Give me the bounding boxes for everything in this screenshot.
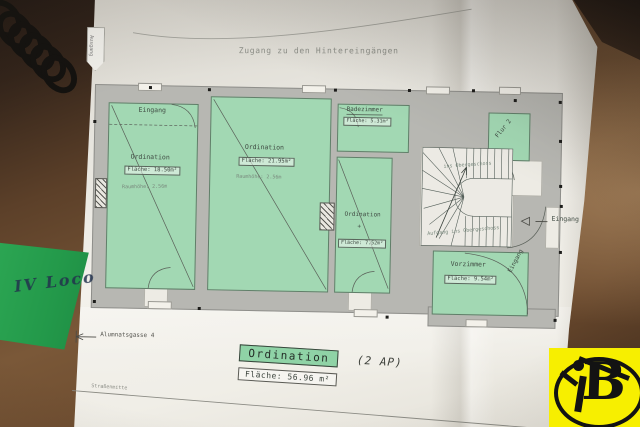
room1-name: Ordination <box>131 154 170 162</box>
room3-name: Ordination <box>345 212 381 219</box>
room1-entrance-label: Eingang <box>138 107 166 115</box>
room2-height: Raumhöhe: 2.56m <box>236 175 281 181</box>
company-logo: B <box>549 348 640 427</box>
right-entrance-label: Eingang <box>551 216 579 224</box>
room2-name: Ordination <box>245 144 284 152</box>
bath-name: Badezimmer <box>346 107 382 115</box>
rear-access-label: Zugang zu den Hintereingängen <box>239 47 399 56</box>
phone-cord <box>0 0 102 104</box>
vorzimmer-name: Vorzimmer <box>451 261 486 269</box>
bath-area: Fläche: 5.31m² <box>343 117 391 126</box>
vorzimmer-area: Fläche: 9.54m² <box>444 275 497 285</box>
legend-suffix: (2 AP) <box>357 354 403 370</box>
room1-area: Fläche: 18.50m² <box>124 166 180 176</box>
street-name-label: Alumnatsgasse 4 <box>100 332 154 340</box>
photo-of-floor-plan: Ausgang Zugang zu den Hintereingängen Ei… <box>0 0 640 427</box>
logo-letter: B <box>581 356 627 408</box>
room3-area: Fläche: 7.52m² <box>338 239 386 248</box>
room3-plus-mark: + <box>357 224 361 231</box>
room1-height: Raumhöhe: 2.56m <box>122 185 167 191</box>
room2-area: Fläche: 21.95m² <box>238 157 294 167</box>
legend-room-type: Ordination <box>239 344 339 367</box>
